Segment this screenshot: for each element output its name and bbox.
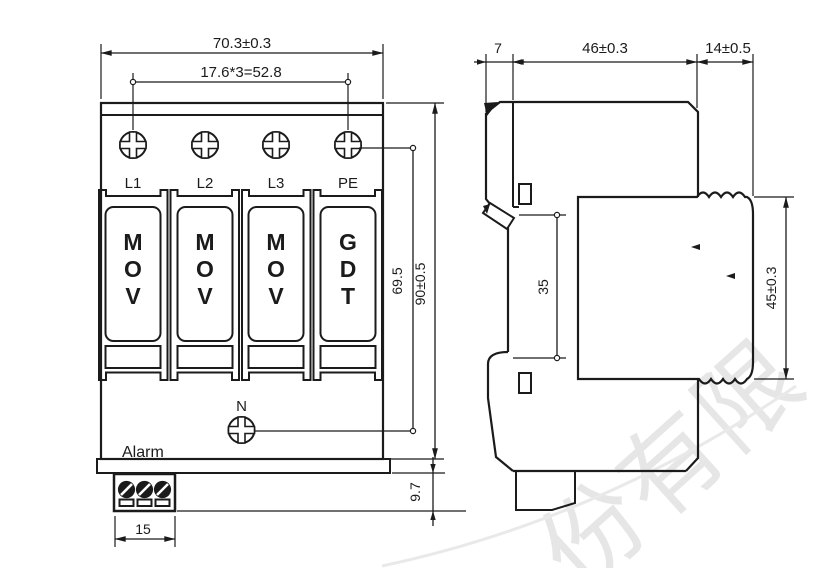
svg-text:M: M (195, 229, 214, 255)
module-face-mark-1 (691, 244, 700, 250)
svg-text:70.3±0.3: 70.3±0.3 (213, 35, 271, 52)
alarm-label: Alarm (122, 444, 164, 461)
svg-text:O: O (196, 256, 214, 282)
svg-text:35: 35 (535, 279, 551, 295)
svg-text:T: T (341, 283, 355, 309)
din-clip-hook (488, 352, 513, 471)
side-body-outline (483, 102, 698, 510)
terminal-label-n: N (236, 398, 247, 415)
alarm-terminal-block (114, 474, 175, 511)
module-gdt: G D T (314, 190, 383, 380)
module-mov-3: M O V (242, 190, 311, 380)
drawing-canvas: L1 L2 L3 PE M O V M O V (0, 0, 822, 568)
side-alarm-block (516, 471, 575, 510)
front-terminal-screws (120, 132, 361, 158)
svg-text:V: V (197, 283, 213, 309)
side-slot-upper (519, 184, 531, 204)
svg-text:V: V (125, 283, 141, 309)
svg-text:G: G (339, 229, 357, 255)
side-view: 7 46±0.3 14±0.5 35 (474, 40, 794, 510)
status-indicator-1 (106, 346, 161, 368)
screw-l2 (192, 132, 218, 158)
svg-text:O: O (124, 256, 142, 282)
watermark-arc (382, 386, 796, 566)
svg-text:15: 15 (135, 521, 151, 537)
svg-text:45±0.3: 45±0.3 (763, 266, 779, 309)
screw-l3 (263, 132, 289, 158)
svg-text:M: M (123, 229, 142, 255)
alarm-screw-3 (154, 481, 171, 506)
module-face-mark-2 (726, 273, 735, 279)
module-mov-1: M O V (99, 190, 168, 380)
svg-text:90±0.5: 90±0.5 (412, 262, 428, 305)
svg-text:14±0.5: 14±0.5 (705, 40, 751, 57)
module-mov-2: M O V (171, 190, 240, 380)
side-slot-lower (519, 373, 531, 393)
front-base-plate (97, 459, 390, 473)
side-module-outline (578, 193, 753, 384)
dim-side-module-depth: 14±0.5 (697, 40, 753, 196)
svg-text:M: M (266, 229, 285, 255)
svg-text:46±0.3: 46±0.3 (582, 40, 628, 57)
status-indicator-4 (321, 346, 376, 368)
alarm-screw-2 (136, 481, 153, 506)
svg-text:O: O (267, 256, 285, 282)
dim-din-rail-height: 35 (513, 215, 566, 358)
terminal-label-l3: L3 (268, 175, 285, 192)
svg-text:9.7: 9.7 (407, 482, 423, 502)
svg-text:69.5: 69.5 (389, 267, 405, 294)
terminal-label-pe: PE (338, 175, 358, 192)
screw-pe (335, 132, 361, 158)
dim-side-body-depth: 46±0.3 (513, 40, 697, 108)
alarm-screw-1 (118, 481, 135, 506)
terminal-label-l2: L2 (197, 175, 214, 192)
svg-text:D: D (340, 256, 357, 282)
status-indicator-2 (178, 346, 233, 368)
terminal-label-l1: L1 (125, 175, 142, 192)
screw-l1 (120, 132, 146, 158)
front-view: L1 L2 L3 PE M O V M O V (97, 35, 466, 547)
technical-drawing-page: 份有限 (0, 0, 822, 568)
screw-n (229, 417, 255, 443)
svg-text:7: 7 (494, 40, 502, 56)
dim-side-module-height: 45±0.3 (754, 197, 794, 379)
dim-front-base-height: 9.7 (177, 457, 466, 526)
dim-front-module-pitch: 17.6*3=52.8 (133, 64, 348, 130)
svg-text:17.6*3=52.8: 17.6*3=52.8 (200, 64, 281, 81)
dim-alarm-terminal-width: 15 (115, 516, 175, 547)
status-indicator-3 (249, 346, 304, 368)
svg-text:V: V (268, 283, 284, 309)
